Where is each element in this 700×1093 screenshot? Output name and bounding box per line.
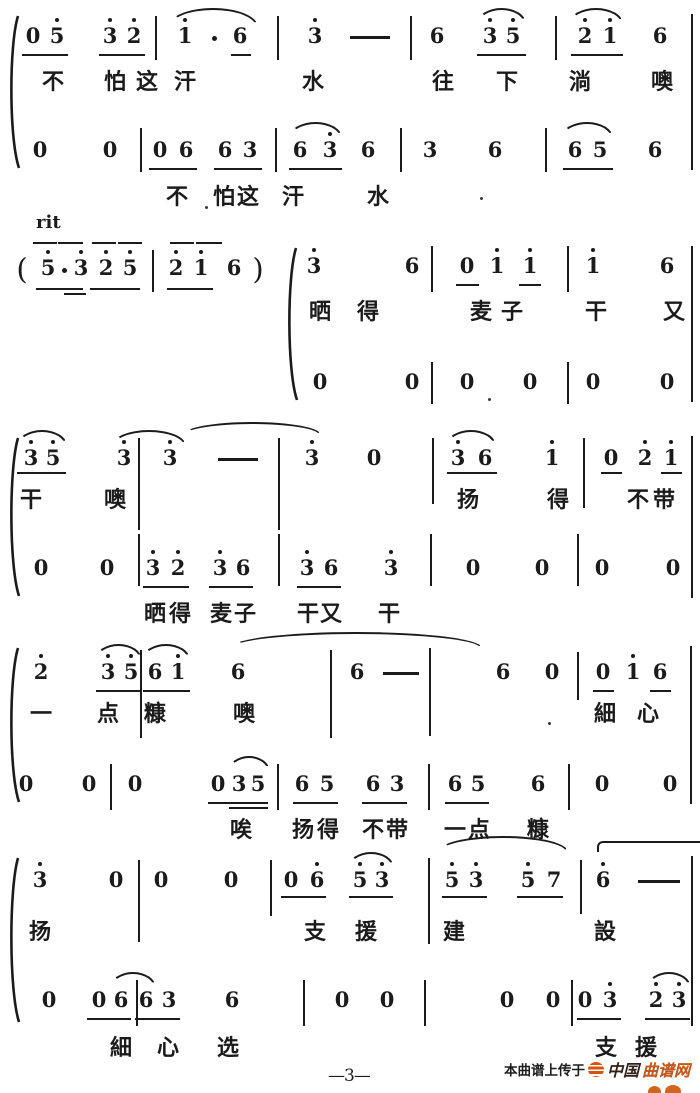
note-digit: 3 [141,556,165,580]
note-digit: 0 [658,772,682,796]
note-digit: 3 [295,556,319,580]
beam-underline [362,802,407,804]
print-speck [488,398,491,401]
lyric-char: 水 [363,185,393,210]
note-digit: 0 [95,556,119,580]
note-digit: 2 [644,988,668,1012]
octave-dot [199,250,203,254]
lyric-char: 噢 [100,488,130,513]
continuation-dash [350,36,390,39]
slur [647,972,691,988]
octave-dot [550,440,554,444]
lyric-char: 干 [374,602,404,627]
note-digit: 5 [36,256,60,280]
watermark-text: 本曲谱上传于 [504,1059,585,1079]
octave-dot [128,250,132,254]
note-digit: 6 [143,660,167,684]
octave-dot [79,250,83,254]
barline [303,980,305,1026]
barline [277,16,279,60]
barline [400,128,402,172]
note-digit: 3 [300,446,324,470]
lyric-char: 麦 [466,300,496,325]
note-digit: 0 [530,556,554,580]
note-digit: 3 [370,868,394,892]
slur [561,122,613,138]
barline [275,128,277,172]
lyric-char: 又 [316,602,346,627]
beam-underline [442,896,487,898]
note-digit: 1 [621,660,645,684]
barline [410,16,412,60]
note-digit: 6 [109,988,133,1012]
barline [138,860,140,942]
beam-underline [289,168,342,170]
phrase-overline [92,242,116,244]
lyric-char: 干 [16,488,46,513]
octave-dot [176,550,180,554]
lyric-char: 設 [590,920,620,945]
barline [140,128,142,172]
octave-dot [38,862,42,866]
note-digit: 0 [455,254,479,278]
note-digit: 3 [302,254,326,278]
note-digit: 0 [123,772,147,796]
beam-underline [563,168,613,170]
note-digit: 3 [418,138,442,162]
note-digit: 0 [455,370,479,394]
system-end-barline [691,856,693,1026]
lyric-char: 带 [382,818,412,843]
system-end-barline [690,646,692,804]
note-digit: 0 [308,370,332,394]
barline [278,438,280,530]
slur [446,430,496,446]
note-digit: 7 [542,868,566,892]
cutoff-orange-mark [648,1086,661,1093]
slur [228,756,270,772]
note-digit: 0 [655,370,679,394]
octave-dot [315,862,319,866]
lyric-char: 下 [492,70,522,95]
note-digit: 6 [400,254,424,278]
lyric-char: 这 [233,185,263,210]
lyric-char: 心 [153,1036,183,1061]
phrase-paren: ( [12,252,32,286]
print-speck [205,206,208,209]
note-digit: 0 [590,772,614,796]
slur [110,972,156,988]
slur [289,122,342,138]
beam-underline-2 [64,293,86,295]
note-digit: 1 [173,24,197,48]
note-digit: 5 [348,868,372,892]
note-digit: 1 [166,660,190,684]
lyric-char: 扬 [25,920,55,945]
note-digit: 2 [29,660,53,684]
note-digit: 0 [29,556,53,580]
lyric-char: 得 [313,818,343,843]
beam-underline [517,896,563,898]
augmentation-dot [62,268,67,273]
slur [168,8,258,27]
note-digit: 0 [495,988,519,1012]
page-number: —3— [328,1066,370,1086]
beam-underline [17,472,66,474]
barline [577,534,579,586]
barline [152,250,154,292]
barline [567,246,569,292]
note-digit: 6 [526,772,550,796]
lyric-char: 唉 [226,818,256,843]
tempo-marking: rit [36,212,61,233]
beam-underline [22,54,68,56]
barline [424,980,426,1026]
lyric-char: 心 [633,702,663,727]
lyric-char: 糠 [140,702,170,727]
beam-underline [297,586,341,588]
barline [432,438,434,504]
beam-underline [349,896,393,898]
note-digit: 0 [219,868,243,892]
note-digit: 6 [290,772,314,796]
note-digit: 6 [228,24,252,48]
barline [428,764,430,810]
beam-underline [293,802,338,804]
lyric-char: 汗 [278,185,308,210]
barline [110,764,112,810]
note-digit: 1 [189,256,213,280]
note-digit: 3 [28,868,52,892]
system-brace [6,14,22,170]
octave-dot [601,862,605,866]
note-digit: 5 [440,868,464,892]
beam-underline [456,284,479,286]
note-digit: 6 [443,772,467,796]
note-digit: 0 [279,868,303,892]
system-end-barline [691,436,693,598]
note-digit: 5 [315,772,339,796]
note-digit: 0 [461,556,485,580]
tie-slur-flat [597,841,700,852]
note-digit: 0 [21,24,45,48]
barline [545,128,547,172]
beam-underline [577,1018,621,1020]
note-digit: 0 [148,138,172,162]
barline [270,860,272,916]
note-digit: 5 [516,868,540,892]
note-digit: 6 [473,446,497,470]
lyric-char: 又 [659,300,689,325]
note-digit: 1 [659,446,683,470]
beam-underline [447,472,497,474]
barline [138,438,140,530]
octave-dot [313,18,317,22]
note-digit: 0 [37,988,61,1012]
note-digit: 0 [362,446,386,470]
note-digit: 6 [361,772,385,796]
octave-dot [526,862,530,866]
system-brace [6,856,22,1024]
site-logo-icon [588,1062,604,1077]
octave-dot [495,248,499,252]
slur [183,422,321,435]
note-digit: 5 [501,24,525,48]
lyric-char: 晒 [305,300,335,325]
slur [348,852,394,868]
print-speck [548,722,551,725]
note-digit: 6 [222,256,246,280]
barline [431,362,433,404]
note-digit: 6 [356,138,380,162]
note-digit: 6 [213,138,237,162]
slur [112,430,186,446]
note-digit: 5 [246,772,270,796]
note-digit: 5 [588,138,612,162]
note-digit: 2 [633,446,657,470]
note-digit: 3 [158,446,182,470]
octave-dot [132,18,136,22]
lyric-char: 淌 [565,70,595,95]
beam-underline [231,54,251,56]
note-digit: 6 [319,556,343,580]
note-digit: 0 [87,988,111,1012]
barline [138,534,140,586]
beam-underline [209,586,253,588]
augmentation-dot [212,36,217,41]
note-digit: 0 [581,370,605,394]
phrase-overline [118,242,142,244]
note-digit: 6 [643,138,667,162]
octave-dot [312,248,316,252]
octave-dot [643,440,647,444]
phrase-overline [196,242,222,244]
barline [571,980,573,1026]
lyric-char: 細 [106,1036,136,1061]
octave-dot [104,250,108,254]
barline [428,858,430,944]
phrase-overline [58,242,83,244]
note-digit: 3 [667,988,691,1012]
lyric-char: 子 [497,300,527,325]
note-digit: 3 [318,138,342,162]
beam-underline-2 [229,807,268,809]
note-digit: 5 [118,256,142,280]
cutoff-orange-mark [665,1085,681,1093]
note-digit: 0 [540,660,564,684]
octave-dot [310,440,314,444]
beam-underline [167,288,213,290]
lyric-char: 子 [230,602,260,627]
beam-underline [650,690,671,692]
beam-underline [445,802,489,804]
note-digit: 3 [69,256,93,280]
note-digit: 6 [648,24,672,48]
note-digit: 6 [174,138,198,162]
note-digit: 6 [288,138,312,162]
note-digit: 3 [19,446,43,470]
octave-dot [474,862,478,866]
lyric-char: 建 [439,920,469,945]
note-digit: 0 [590,556,614,580]
note-digit: 6 [226,660,250,684]
octave-dot [631,654,635,658]
barline [155,16,157,60]
beam-underline [645,1018,690,1020]
note-digit: 1 [598,24,622,48]
print-speck [480,197,483,200]
octave-dot [108,18,112,22]
barline [431,246,433,292]
note-digit: 0 [375,988,399,1012]
octave-dot [669,440,673,444]
lyric-char: 这 [132,70,162,95]
lyric-char: 支 [300,920,330,945]
note-digit: 3 [379,556,403,580]
note-digit: 6 [220,988,244,1012]
beam-underline [593,690,614,692]
slur [17,430,67,446]
note-digit: 3 [464,868,488,892]
note-digit: 0 [518,370,542,394]
note-digit: 5 [41,446,65,470]
lyric-char: 水 [298,70,328,95]
lyric-char: 噢 [647,70,677,95]
lyric-char: 得 [353,300,383,325]
note-digit: 0 [599,446,623,470]
note-digit: 6 [563,138,587,162]
octave-dot [450,862,454,866]
beam-underline [571,54,623,56]
note-digit: 3 [446,446,470,470]
slur [142,644,190,660]
note-digit: 2 [573,24,597,48]
beam-underline [519,284,541,286]
beam-underline [143,586,189,588]
beam-underline [601,472,622,474]
note-digit: 6 [655,254,679,278]
beam-underline [99,54,145,56]
octave-dot [218,550,222,554]
system-end-barline [691,14,693,170]
note-digit: 5 [45,24,69,48]
system-brace [284,246,300,402]
octave-dot [151,550,155,554]
note-digit: 3 [157,988,181,1012]
note-digit: 0 [573,988,597,1012]
note-digit: 0 [104,868,128,892]
lyric-char: 往 [428,70,458,95]
note-digit: 0 [14,772,38,796]
phrase-overline [170,242,194,244]
lyric-char: 点 [93,702,123,727]
lyric-char: 怕 [100,70,130,95]
note-digit: 3 [238,138,262,162]
slur [569,8,623,24]
system-end-barline [691,246,693,402]
note-digit: 1 [518,254,542,278]
barline [330,650,332,738]
lyric-char: 带 [649,488,679,513]
note-digit: 3 [303,24,327,48]
octave-dot [591,248,595,252]
note-digit: 0 [400,370,424,394]
octave-dot [305,550,309,554]
note-digit: 1 [485,254,509,278]
beam-underline [214,168,262,170]
lyric-char: 汗 [170,70,200,95]
beam-underline [229,802,268,804]
lyric-char: 扬 [453,488,483,513]
note-digit: 3 [98,24,122,48]
note-digit: 2 [122,24,146,48]
note-digit: 6 [483,138,507,162]
note-digit: 5 [466,772,490,796]
note-digit: 6 [305,868,329,892]
barline [568,764,570,810]
barline [580,860,582,914]
beam-underline [661,472,682,474]
note-digit: 3 [385,772,409,796]
lyric-char: 得 [165,602,195,627]
note-digit: 2 [164,256,188,280]
note-digit: 6 [591,868,615,892]
note-digit: 3 [208,556,232,580]
note-digit: 6 [648,660,672,684]
beam-underline [96,690,142,692]
beam-underline [477,54,526,56]
lyric-char: 干 [581,300,611,325]
beam-underline [90,288,140,290]
beam-underline [208,802,229,804]
note-digit: 0 [330,988,354,1012]
continuation-dash [218,458,258,461]
note-digit: 0 [591,660,615,684]
slur [477,8,526,24]
note-digit: 0 [77,772,101,796]
beam-underline [36,288,83,290]
note-digit: 3 [112,446,136,470]
octave-dot [608,982,612,986]
sheet-music-page: 0532163635216不怕这汗水往下淌噢00066363636656不怕这汗… [0,0,700,1093]
lyric-char: 得 [543,488,573,513]
beam-underline [135,1018,180,1020]
barline [278,534,280,586]
note-digit: 3 [96,660,120,684]
barline [429,648,431,736]
phrase-overline [33,242,57,244]
barline [277,764,279,810]
note-digit: 2 [94,256,118,280]
site-name-light: 曲谱网 [642,1057,690,1081]
watermark: 本曲谱上传于 中国 曲谱网 [504,1057,690,1081]
beam-underline [149,168,197,170]
note-digit: 6 [425,24,449,48]
slur [230,632,482,648]
slur [95,644,142,660]
note-digit: 2 [166,556,190,580]
lyric-char: 噢 [229,702,259,727]
note-digit: 0 [28,138,52,162]
barline [567,362,569,404]
note-digit: 6 [491,660,515,684]
continuation-dash [638,880,680,883]
continuation-dash [383,672,419,675]
lyric-char: 一 [26,702,56,727]
barline [430,534,432,586]
octave-dot [46,250,50,254]
lyric-char: 細 [590,702,620,727]
